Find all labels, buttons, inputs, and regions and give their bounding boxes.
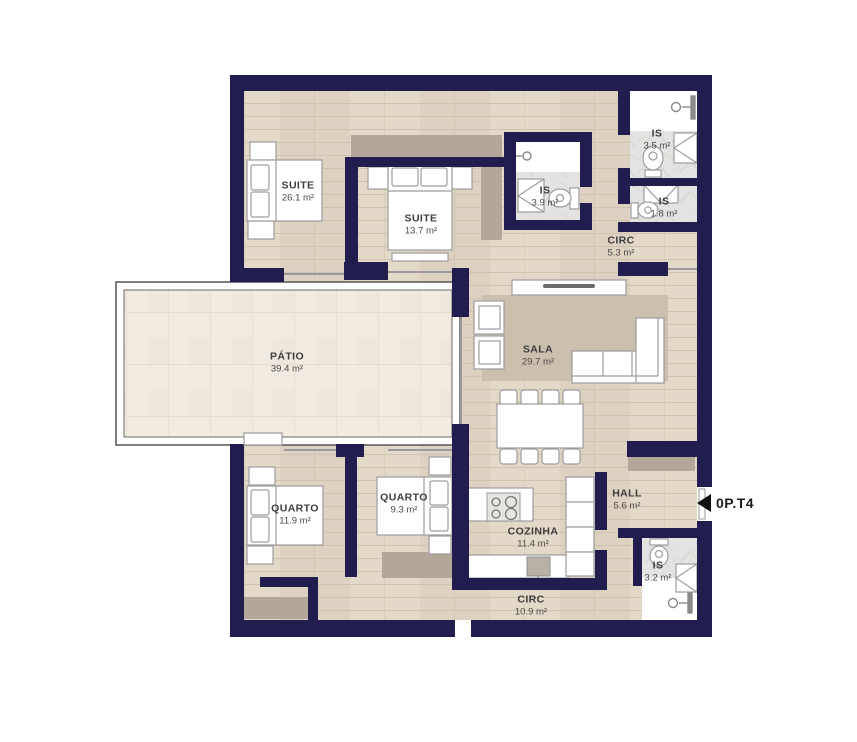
wall-left-upper — [230, 75, 244, 282]
is2-tub-zone — [630, 91, 697, 131]
suite2-wardrobe-top — [351, 135, 502, 157]
kitchen-cabinets — [566, 477, 594, 576]
shower-enclosure — [676, 564, 697, 592]
entrance-unit-label: 0P.T4 — [716, 495, 754, 511]
kitchen-counter-bottom — [464, 555, 568, 578]
toilet-icon — [549, 188, 579, 209]
wall-right-lower — [697, 521, 712, 637]
quarto1-window — [244, 433, 282, 445]
wall-top — [230, 75, 712, 91]
floorplan-drawing — [0, 0, 857, 742]
hall-wardrobe — [628, 457, 695, 471]
tv — [543, 284, 595, 288]
shower-enclosure — [674, 133, 697, 163]
toilet-icon — [650, 539, 668, 566]
suite2-wardrobe-side — [481, 160, 502, 240]
wall-bottom-left — [230, 620, 455, 637]
wall-right-upper — [697, 75, 712, 487]
wall-left-lower — [230, 444, 244, 620]
shower-tray — [518, 179, 544, 212]
quarto1-wardrobe — [240, 597, 308, 619]
patio-floor — [124, 290, 452, 437]
kitchen-sink — [527, 557, 550, 576]
toilet-icon — [643, 146, 663, 177]
is1-tub-zone — [516, 142, 580, 172]
toilet-icon — [631, 202, 658, 218]
wall-bottom-right — [471, 620, 712, 637]
quarto2-wardrobe — [382, 552, 452, 578]
floorplan-page: SUITE 26.1 m² SUITE 13.7 m² IS 3.9 m² IS… — [0, 0, 857, 742]
